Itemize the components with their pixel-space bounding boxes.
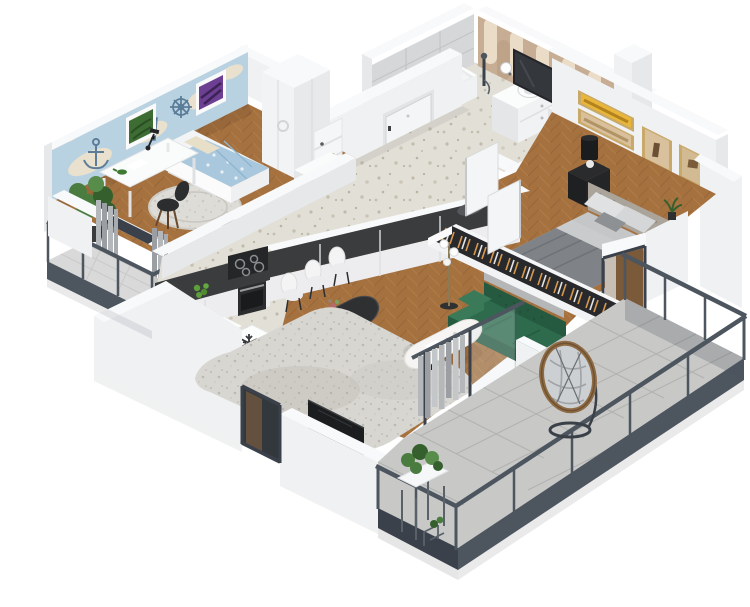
floorplan-render [0,0,750,607]
floorplan-stage [0,0,750,607]
